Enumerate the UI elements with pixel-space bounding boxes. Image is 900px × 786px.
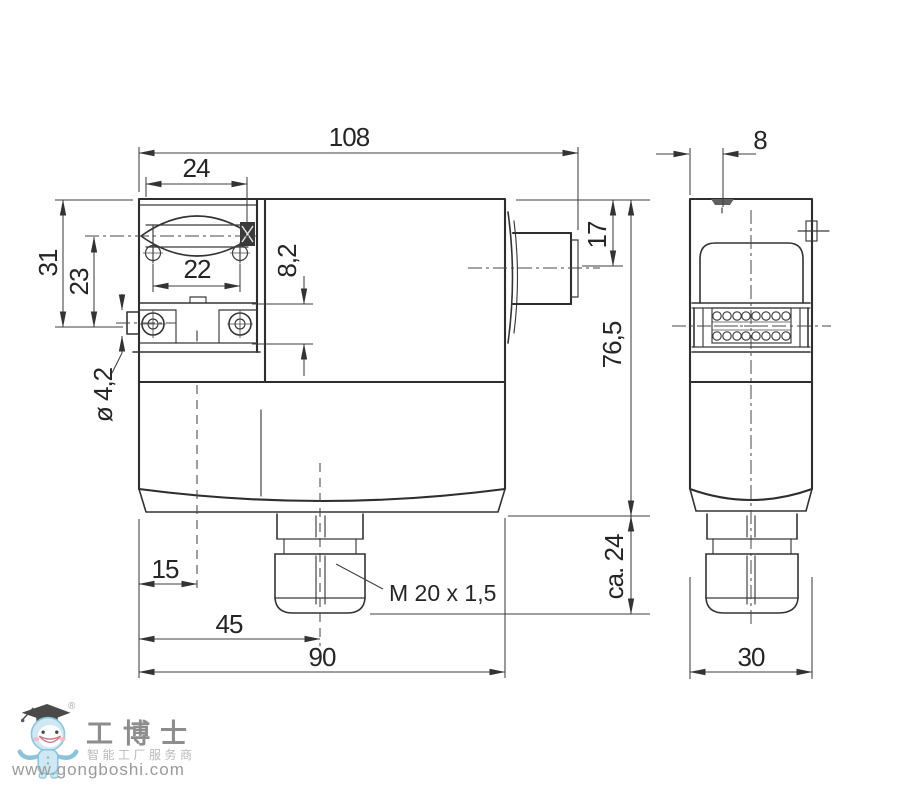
dim-ca-24: ca. 24 <box>599 534 629 599</box>
dim-90: 90 <box>309 642 336 672</box>
housing-outline <box>139 199 505 501</box>
dim-8: 8 <box>753 125 767 155</box>
dim-30: 30 <box>738 642 765 672</box>
registered-mark: ® <box>68 701 75 712</box>
technical-drawing: 108 24 31 23 ø 4,2 22 8,2 17 <box>0 0 900 786</box>
dim-22: 22 <box>184 254 211 284</box>
dim-45: 45 <box>216 609 243 639</box>
drawing-canvas: 108 24 31 23 ø 4,2 22 8,2 17 <box>0 0 900 786</box>
dim-31: 31 <box>33 249 63 276</box>
watermark-logo: ® 工博士 智能工厂服务商 www.gongboshi.com <box>6 698 236 782</box>
dim-15: 15 <box>152 554 179 584</box>
dim-17: 17 <box>582 221 612 248</box>
cable-gland-side <box>706 514 798 613</box>
label-thread: M 20 x 1,5 <box>389 580 496 606</box>
connector-plug <box>508 212 578 343</box>
dim-24: 24 <box>183 153 210 183</box>
dim-23: 23 <box>64 268 94 295</box>
dim-108: 108 <box>329 122 370 152</box>
logo-url: www.gongboshi.com <box>12 760 185 780</box>
side-view <box>672 199 831 628</box>
dim-76-5: 76,5 <box>597 321 627 368</box>
dim-8-2: 8,2 <box>272 244 302 278</box>
dim-hole-diameter: ø 4,2 <box>88 367 118 422</box>
